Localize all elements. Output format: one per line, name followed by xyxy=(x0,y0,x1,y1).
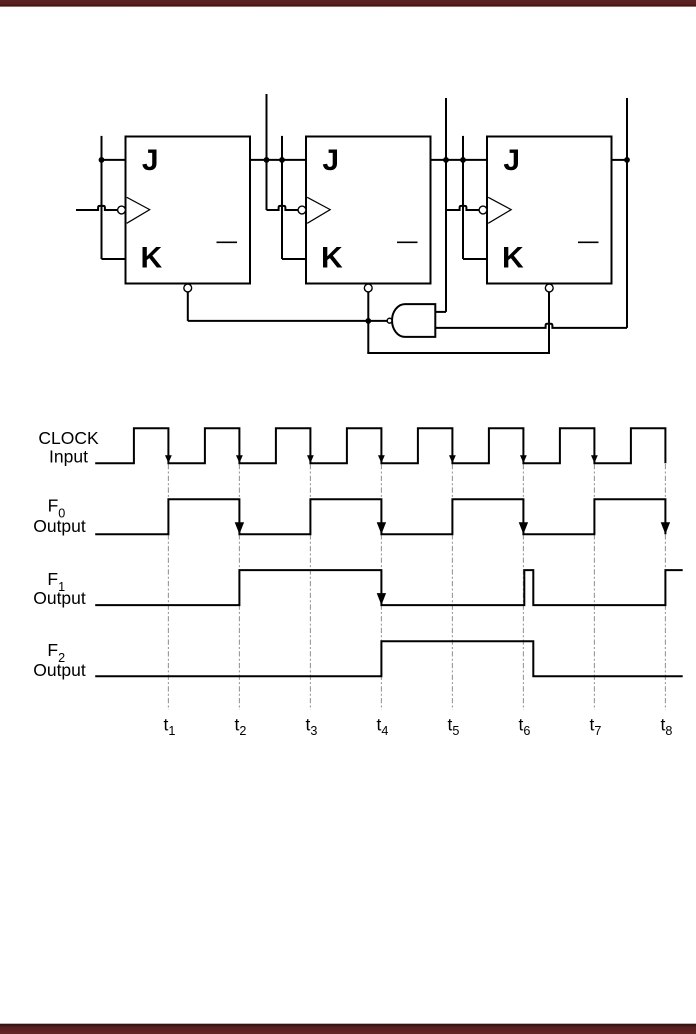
svg-text:Output: Output xyxy=(33,516,86,536)
svg-text:Output: Output xyxy=(33,660,86,680)
svg-text:K: K xyxy=(141,242,163,275)
svg-text:J: J xyxy=(322,144,339,177)
svg-text:Output: Output xyxy=(33,588,86,608)
svg-text:J: J xyxy=(503,144,520,177)
svg-text:K: K xyxy=(321,242,343,275)
svg-text:K: K xyxy=(502,242,524,275)
svg-text:Input: Input xyxy=(49,446,88,466)
svg-text:CLOCK: CLOCK xyxy=(38,428,99,448)
svg-text:J: J xyxy=(142,144,159,177)
